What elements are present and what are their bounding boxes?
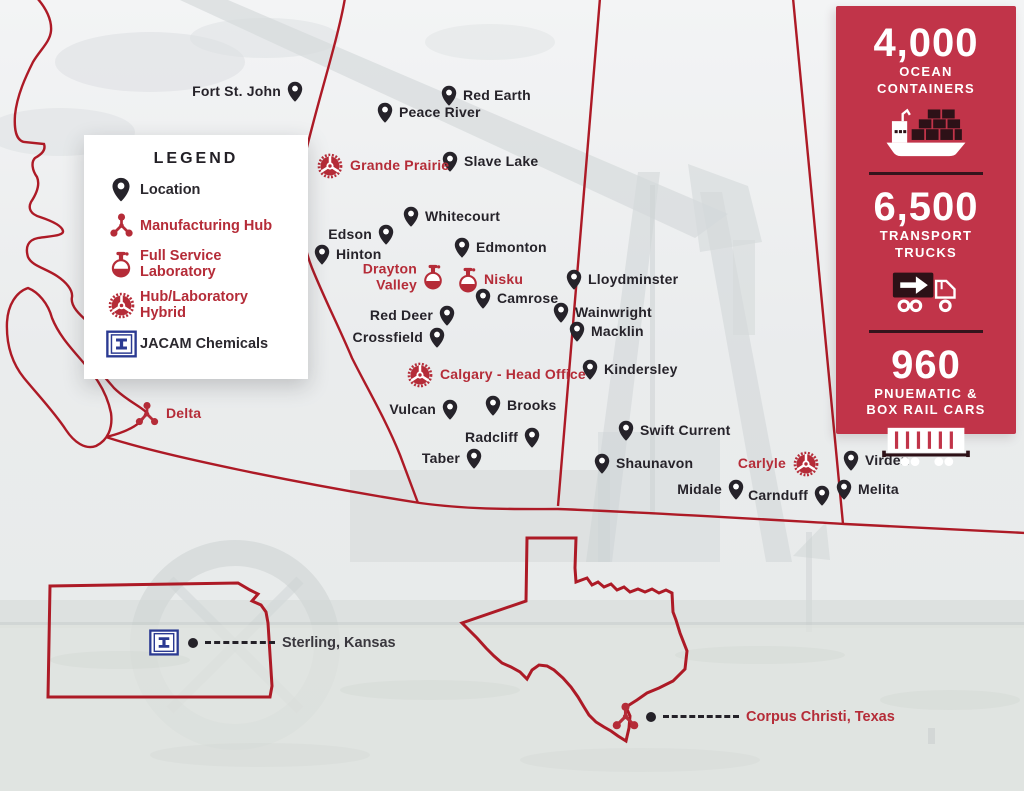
stat-label: BOX RAIL CARS bbox=[836, 402, 1016, 419]
divider bbox=[869, 172, 983, 175]
legend-item-label: JACAM Chemicals bbox=[140, 336, 268, 352]
legend-item-label: Full Service Laboratory bbox=[140, 248, 290, 280]
jacam-logo-icon bbox=[149, 629, 179, 656]
hub-laboratory-hybrid-icon bbox=[406, 361, 434, 389]
legend-item-label: Manufacturing Hub bbox=[140, 218, 272, 234]
manufacturing-hub-icon bbox=[134, 401, 161, 428]
jacam-locations-map: Fort St. JohnRed EarthPeace RiverSlave L… bbox=[0, 0, 1024, 791]
location-pin-icon bbox=[485, 395, 502, 417]
texas-callout-label: Corpus Christi, Texas bbox=[746, 709, 895, 725]
marker-label: Swift Current bbox=[640, 423, 731, 439]
marker-label: Calgary - Head Office bbox=[440, 367, 586, 383]
marker-label: Whitecourt bbox=[425, 209, 500, 225]
marker-label: Radcliff bbox=[465, 430, 518, 446]
location-pin-icon bbox=[377, 102, 394, 124]
marker-label: Edson bbox=[328, 227, 372, 243]
legend-item-label: Location bbox=[140, 182, 200, 198]
marker-label: Midale bbox=[677, 482, 722, 498]
marker-label: Shaunavon bbox=[616, 456, 693, 472]
marker-label: Vulcan bbox=[389, 402, 436, 418]
location-pin-icon bbox=[814, 485, 831, 507]
marker-label: Melita bbox=[858, 482, 899, 498]
location-pin-icon bbox=[475, 288, 492, 310]
transport-truck-icon bbox=[890, 269, 962, 315]
marker-label: DraytonValley bbox=[363, 261, 417, 292]
laboratory-flask-icon bbox=[423, 264, 444, 290]
kansas-callout-label: Sterling, Kansas bbox=[282, 635, 396, 651]
marker-label: Carlyle bbox=[738, 456, 786, 472]
location-pin-icon bbox=[728, 479, 745, 501]
location-pin-icon bbox=[287, 81, 304, 103]
stat-label: PNUEMATIC & bbox=[836, 386, 1016, 403]
rail-car-icon bbox=[880, 426, 972, 468]
stat-ocean-containers: 4,000 OCEAN CONTAINERS bbox=[836, 22, 1016, 162]
callout-dashed-line bbox=[663, 715, 739, 718]
stat-value: 960 bbox=[836, 344, 1016, 386]
marker-label: Red Earth bbox=[463, 88, 531, 104]
marker-label: Camrose bbox=[497, 291, 558, 307]
hub-laboratory-hybrid-icon bbox=[316, 152, 344, 180]
callout-dot bbox=[188, 638, 198, 648]
manufacturing-hub-icon bbox=[108, 212, 135, 239]
stat-label: OCEAN bbox=[836, 64, 1016, 81]
legend-item-hub-laboratory-hybrid: Hub/Laboratory Hybrid bbox=[102, 289, 290, 321]
location-pin-icon bbox=[314, 244, 331, 266]
legend-title: LEGEND bbox=[98, 150, 294, 168]
kansas-callout: Sterling, Kansas bbox=[149, 629, 396, 656]
legend-item-location: Location bbox=[102, 177, 290, 203]
divider bbox=[869, 330, 983, 333]
laboratory-flask-icon bbox=[110, 251, 132, 278]
callout-dashed-line bbox=[205, 641, 275, 644]
location-pin-icon bbox=[466, 448, 483, 470]
legend-item-jacam-chemicals: JACAM Chemicals bbox=[102, 330, 290, 358]
stat-label: TRUCKS bbox=[836, 245, 1016, 262]
marker-label: Kindersley bbox=[604, 362, 678, 378]
location-pin-icon bbox=[569, 321, 586, 343]
stats-panel: 4,000 OCEAN CONTAINERS 6,500 TRANSPORT T… bbox=[836, 6, 1016, 434]
location-pin-icon bbox=[618, 420, 635, 442]
callout-dot bbox=[646, 712, 656, 722]
legend-item-manufacturing-hub: Manufacturing Hub bbox=[102, 212, 290, 239]
location-pin-icon bbox=[378, 224, 395, 246]
marker-label: Carnduff bbox=[748, 488, 808, 504]
legend-panel: LEGEND Location Manufacturing Hub Full S… bbox=[84, 135, 308, 379]
marker-label: Nisku bbox=[484, 272, 523, 288]
location-pin-icon bbox=[403, 206, 420, 228]
marker-label: Grande Prairie bbox=[350, 158, 449, 174]
marker-label: Macklin bbox=[591, 324, 644, 340]
stat-rail-cars: 960 PNUEMATIC & BOX RAIL CARS bbox=[836, 344, 1016, 474]
location-pin-icon bbox=[566, 269, 583, 291]
stat-label: CONTAINERS bbox=[836, 81, 1016, 98]
stat-value: 4,000 bbox=[836, 22, 1016, 64]
location-pin-icon bbox=[111, 177, 131, 203]
marker-label: Brooks bbox=[507, 398, 556, 414]
hub-laboratory-hybrid-icon bbox=[792, 450, 820, 478]
manufacturing-hub-icon bbox=[610, 701, 641, 732]
cargo-ship-icon bbox=[880, 105, 972, 157]
marker-label: Crossfield bbox=[353, 330, 423, 346]
marker-label: Edmonton bbox=[476, 240, 547, 256]
stat-transport-trucks: 6,500 TRANSPORT TRUCKS bbox=[836, 186, 1016, 320]
marker-label: Wainwright bbox=[575, 305, 652, 321]
location-pin-icon bbox=[836, 479, 853, 501]
marker-label: Peace River bbox=[399, 105, 481, 121]
location-pin-icon bbox=[594, 453, 611, 475]
marker-label: Fort St. John bbox=[192, 84, 281, 100]
marker-label: Lloydminster bbox=[588, 272, 678, 288]
location-pin-icon bbox=[429, 327, 446, 349]
marker-label: Slave Lake bbox=[464, 154, 538, 170]
hub-laboratory-hybrid-icon bbox=[107, 291, 136, 320]
texas-callout: Corpus Christi, Texas bbox=[610, 701, 895, 732]
jacam-logo-icon bbox=[106, 330, 137, 358]
location-pin-icon bbox=[442, 399, 459, 421]
stat-label: TRANSPORT bbox=[836, 228, 1016, 245]
stat-value: 6,500 bbox=[836, 186, 1016, 228]
location-pin-icon bbox=[524, 427, 541, 449]
marker-label: Red Deer bbox=[370, 308, 433, 324]
legend-item-label: Hub/Laboratory Hybrid bbox=[140, 289, 290, 321]
marker-label: Delta bbox=[166, 406, 201, 422]
marker-label: Taber bbox=[422, 451, 460, 467]
location-pin-icon bbox=[439, 305, 456, 327]
location-pin-icon bbox=[553, 302, 570, 324]
legend-item-full-service-laboratory: Full Service Laboratory bbox=[102, 248, 290, 280]
location-pin-icon bbox=[454, 237, 471, 259]
